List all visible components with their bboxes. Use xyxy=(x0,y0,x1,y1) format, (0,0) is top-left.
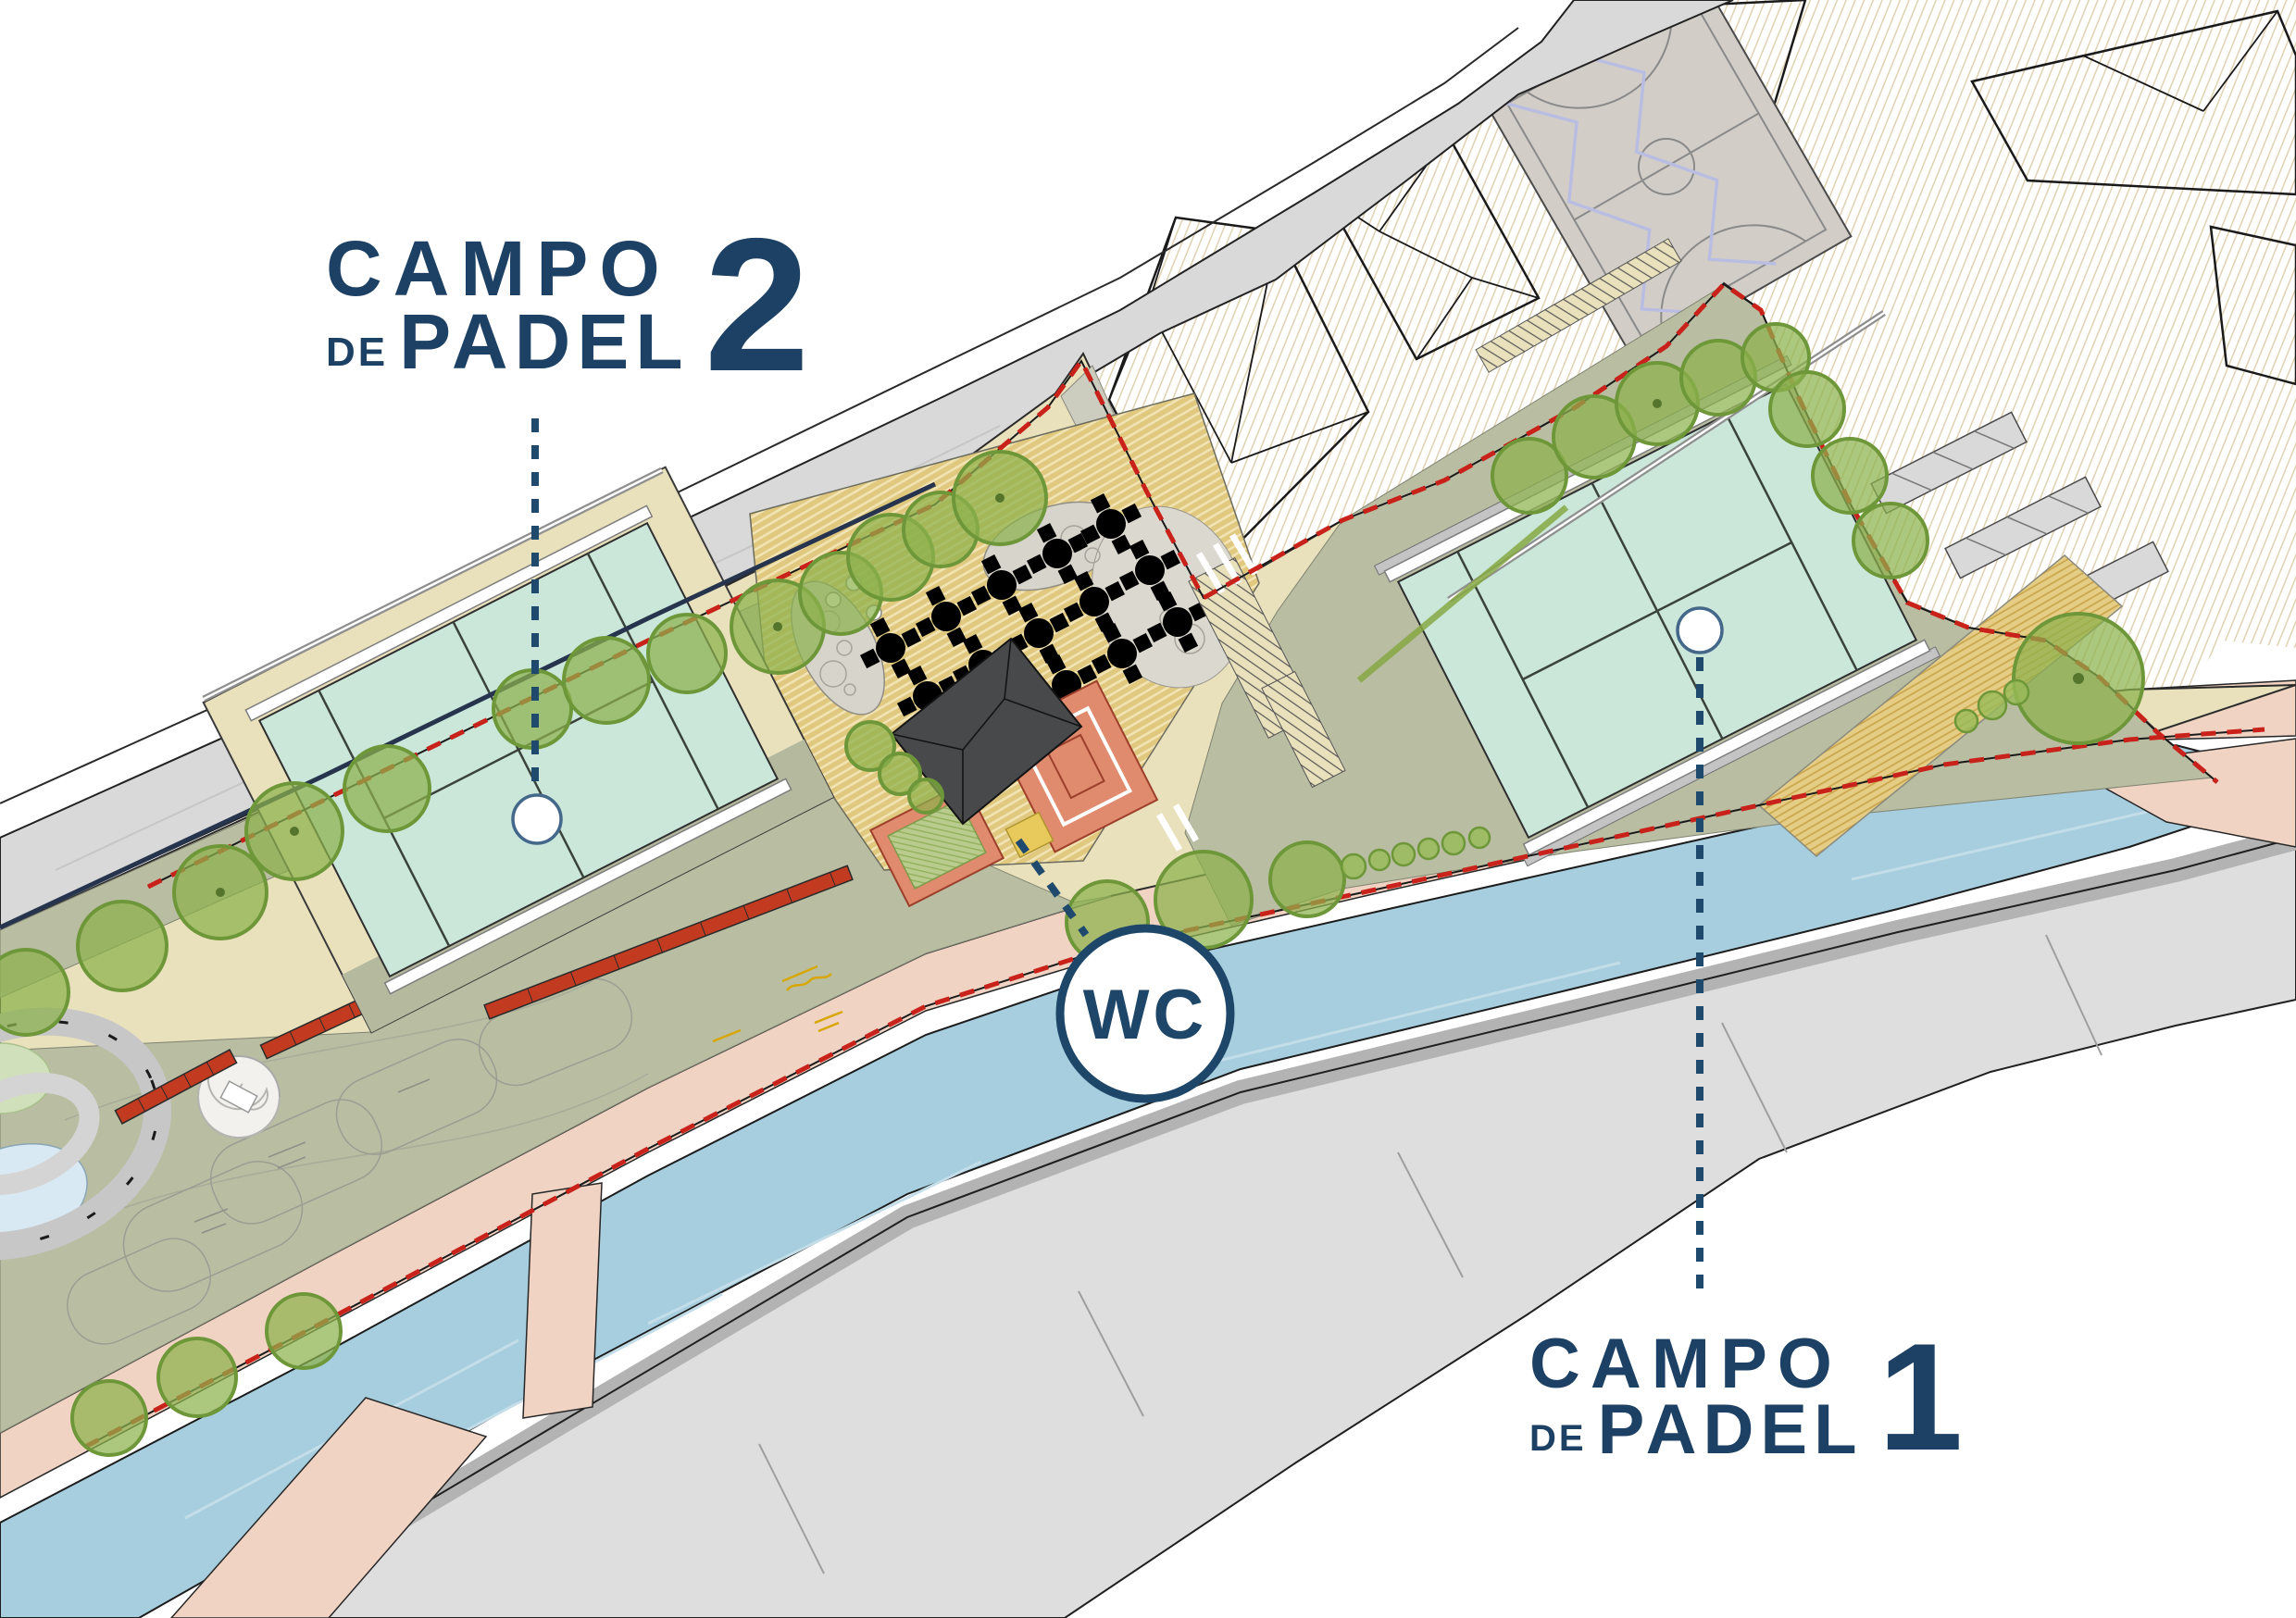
tree-icon xyxy=(1813,439,1887,513)
shrub-icon xyxy=(1341,854,1366,878)
shrub-icon xyxy=(1978,691,2006,719)
tree-icon xyxy=(267,1294,341,1368)
footbridge xyxy=(523,1183,602,1418)
tree-icon xyxy=(493,670,571,748)
shrub-icon xyxy=(2004,680,2028,704)
label-de: DE xyxy=(326,334,388,378)
shrub-icon xyxy=(1392,843,1415,865)
tree-icon xyxy=(72,1381,146,1455)
court-1-marker xyxy=(1678,608,1722,653)
label-campo-de-padel-2: CAMPO DE PADEL 2 xyxy=(326,230,810,381)
tree-icon xyxy=(158,1338,236,1416)
site-plan: WC CAMPO DE PADEL 2 CAMPO DE PADEL 1 xyxy=(0,0,2296,1618)
label-line: CAMPO xyxy=(326,232,690,306)
label-court-number: 1 xyxy=(1878,1336,1964,1458)
label-campo-de-padel-1: CAMPO DE PADEL 1 xyxy=(1529,1331,1963,1462)
shrub-icon xyxy=(1442,832,1465,854)
tree-icon xyxy=(1853,504,1928,578)
label-line: CAMPO xyxy=(1529,1331,1864,1398)
shrub-icon xyxy=(1469,828,1490,848)
wc-badge: WC xyxy=(1060,928,1230,1099)
label-de: DE xyxy=(1529,1422,1587,1462)
tree-icon xyxy=(1770,372,1844,446)
shrub-icon xyxy=(1955,710,1978,732)
tree-icon xyxy=(344,746,430,831)
tree-icon xyxy=(78,902,167,990)
tree-icon xyxy=(564,638,649,723)
tree-icon xyxy=(1270,842,1344,916)
label-line: PADEL xyxy=(399,306,689,378)
tree-icon xyxy=(909,779,942,813)
shrub-icon xyxy=(1418,839,1439,859)
tree-icon xyxy=(0,950,69,1035)
wc-badge-label: WC xyxy=(1083,976,1208,1054)
label-court-number: 2 xyxy=(705,230,810,381)
shrub-icon xyxy=(1369,850,1390,870)
court-2-marker xyxy=(513,795,561,843)
label-line: PADEL xyxy=(1598,1398,1864,1462)
tree-icon xyxy=(648,615,726,692)
